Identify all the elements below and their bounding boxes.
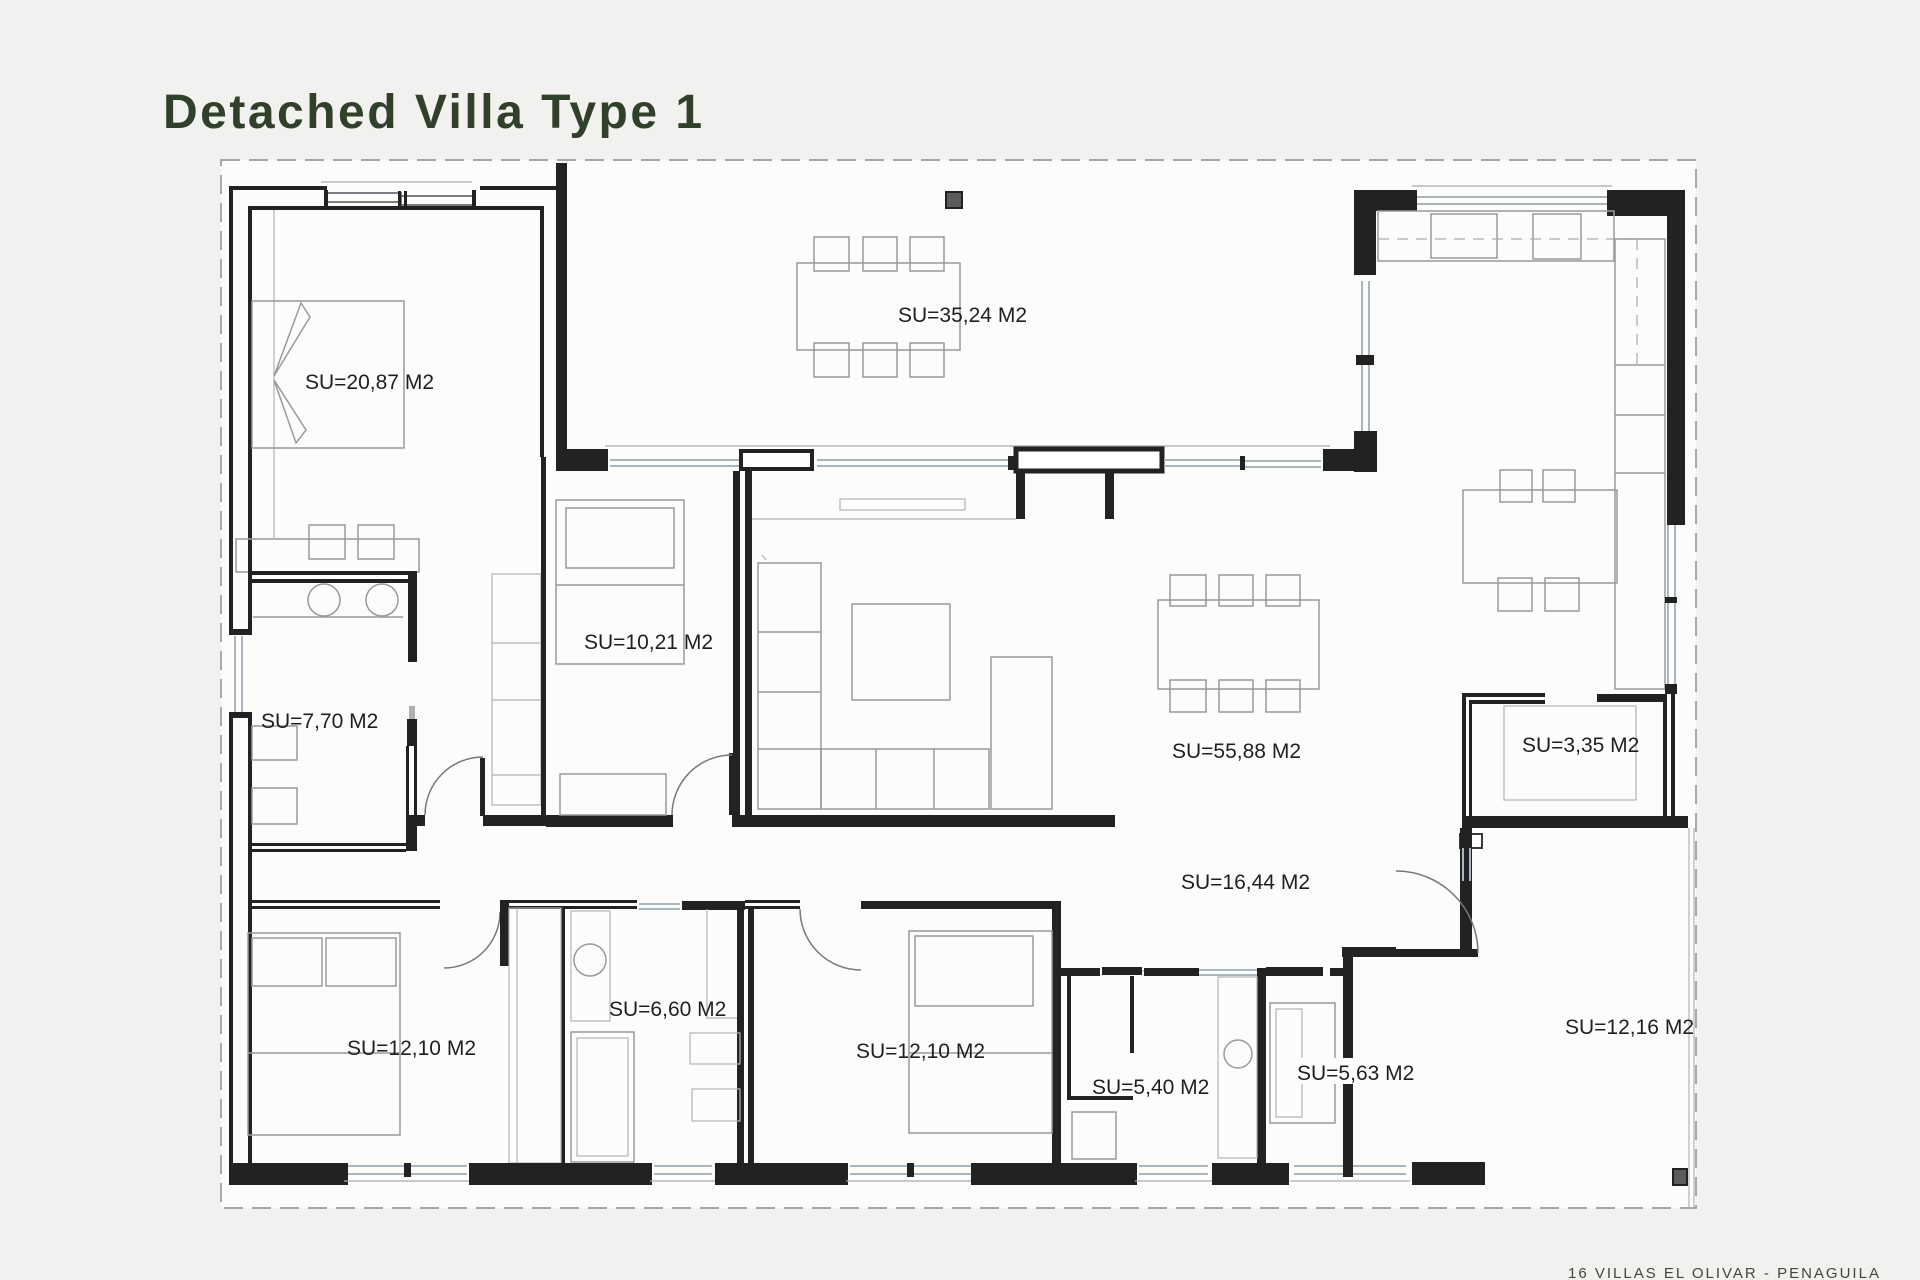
svg-text:SU=12,10 M2: SU=12,10 M2 bbox=[347, 1037, 476, 1060]
svg-text:SU=10,21 M2: SU=10,21 M2 bbox=[584, 631, 713, 654]
svg-text:16 VILLAS EL OLIVAR - PENAGUI: 16 VILLAS EL OLIVAR - PENAGUILA bbox=[1568, 1265, 1881, 1280]
svg-text:SU=6,60 M2: SU=6,60 M2 bbox=[609, 998, 726, 1021]
svg-text:SU=35,24 M2: SU=35,24 M2 bbox=[898, 304, 1027, 327]
svg-text:SU=55,88 M2: SU=55,88 M2 bbox=[1172, 740, 1301, 763]
svg-text:SU=20,87 M2: SU=20,87 M2 bbox=[305, 371, 434, 394]
svg-text:SU=5,40 M2: SU=5,40 M2 bbox=[1092, 1076, 1209, 1099]
svg-text:SU=12,10 M2: SU=12,10 M2 bbox=[856, 1040, 985, 1063]
svg-text:SU=12,16 M2: SU=12,16 M2 bbox=[1565, 1016, 1694, 1039]
svg-text:SU=7,70 M2: SU=7,70 M2 bbox=[261, 710, 378, 733]
svg-text:Detached Villa Type 1: Detached Villa Type 1 bbox=[163, 86, 705, 139]
svg-text:SU=5,63 M2: SU=5,63 M2 bbox=[1297, 1062, 1414, 1085]
svg-text:SU=16,44 M2: SU=16,44 M2 bbox=[1181, 871, 1310, 894]
svg-text:SU=3,35 M2: SU=3,35 M2 bbox=[1522, 734, 1639, 757]
